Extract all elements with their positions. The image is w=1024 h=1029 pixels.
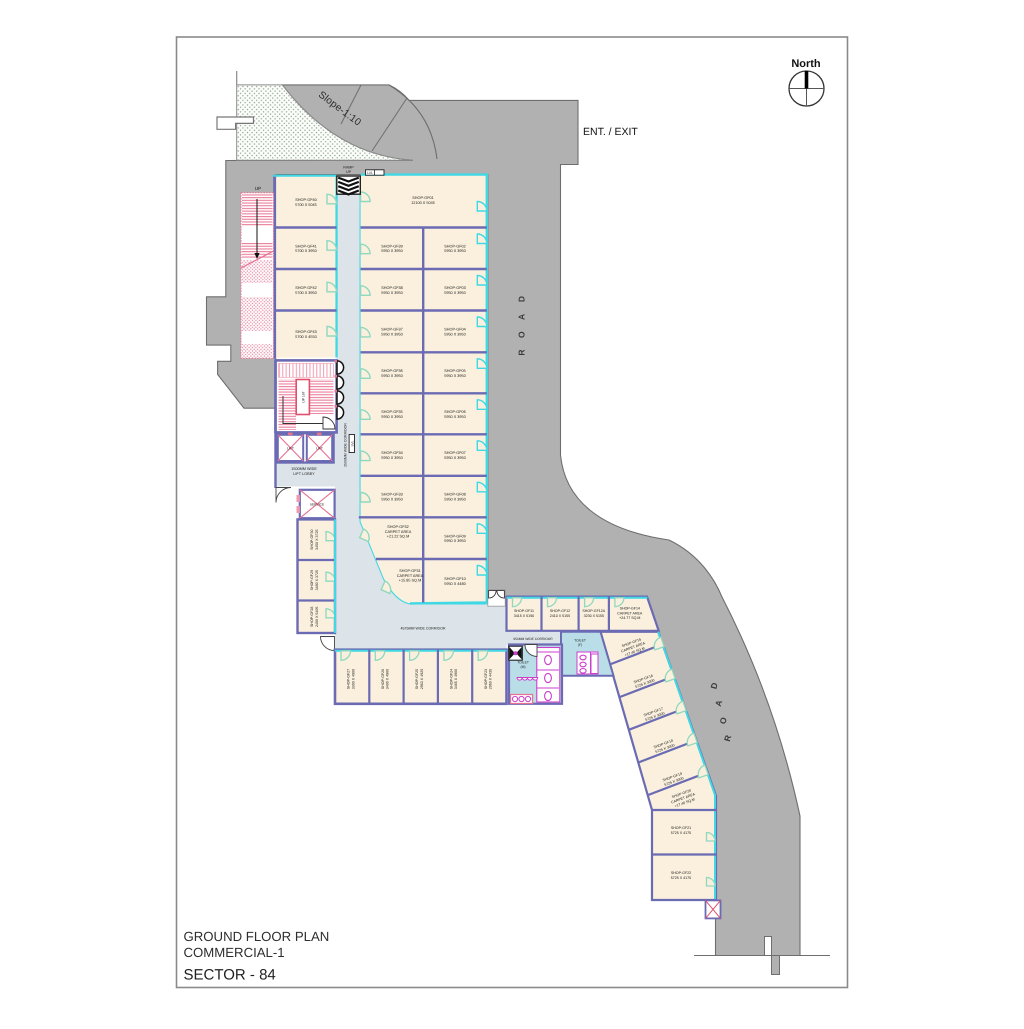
svg-text:3415 X 5190: 3415 X 5190: [514, 614, 534, 618]
svg-text:SHOP-GF41: SHOP-GF41: [295, 244, 317, 248]
svg-text:North: North: [791, 58, 821, 70]
svg-text:SHOP-GF32: SHOP-GF32: [387, 525, 409, 529]
svg-text:SHOP-GF26: SHOP-GF26: [381, 669, 385, 689]
svg-text:3400 X 4900: 3400 X 4900: [386, 669, 390, 689]
svg-text:LVL: LVL: [367, 171, 373, 175]
svg-text:5700 X 4550: 5700 X 4550: [295, 335, 317, 339]
svg-text:5950 X 3950: 5950 X 3950: [381, 374, 403, 378]
svg-text:R: R: [517, 349, 527, 355]
svg-text:5950 X 3950: 5950 X 3950: [444, 374, 466, 378]
svg-text:SHOP-GF31: SHOP-GF31: [399, 569, 421, 573]
svg-text:SHOP-GF42: SHOP-GF42: [295, 286, 317, 290]
svg-text:1500MM WIDE: 1500MM WIDE: [291, 467, 317, 471]
svg-text:UP 16T: UP 16T: [302, 391, 306, 402]
svg-text:3480 X 3725: 3480 X 3725: [315, 570, 319, 590]
svg-text:SECTOR - 84: SECTOR - 84: [184, 967, 276, 984]
svg-text:3450 X 3725: 3450 X 3725: [315, 530, 319, 550]
svg-text:(M): (M): [520, 665, 525, 669]
svg-text:2410 X 5155: 2410 X 5155: [550, 614, 570, 618]
svg-text:SHOP-GF09: SHOP-GF09: [444, 534, 466, 538]
svg-text:RAMP: RAMP: [343, 165, 354, 169]
svg-text:5950 X 3950: 5950 X 3950: [444, 332, 466, 336]
svg-text:5950 X 3950: 5950 X 3950: [444, 249, 466, 253]
svg-text:5950 X 3950: 5950 X 3950: [381, 498, 403, 502]
svg-text:5950 X 3950: 5950 X 3950: [381, 249, 403, 253]
svg-text:2500MM WIDE CORRIDOR: 2500MM WIDE CORRIDOR: [343, 423, 347, 467]
svg-text:SHOP-GF03: SHOP-GF03: [444, 286, 466, 290]
svg-text:2400 X 5405: 2400 X 5405: [315, 607, 319, 627]
svg-text:SHOP-GF12A: SHOP-GF12A: [582, 609, 605, 613]
svg-text:SHOP-GF30: SHOP-GF30: [310, 530, 314, 550]
svg-text:SHOP-GF35: SHOP-GF35: [381, 410, 403, 414]
svg-text:SHOP-GF23: SHOP-GF23: [484, 669, 488, 689]
svg-text:5950 X 3950: 5950 X 3950: [444, 498, 466, 502]
svg-text:LIFT: LIFT: [316, 447, 323, 451]
svg-text:SHOP-GF21: SHOP-GF21: [671, 826, 691, 830]
svg-text:A: A: [517, 314, 527, 320]
svg-text:+24.77 SQ.M: +24.77 SQ.M: [619, 616, 640, 620]
svg-text:TOILET: TOILET: [574, 639, 586, 643]
svg-text:UP: UP: [255, 186, 261, 191]
svg-text:5950 X 3950: 5950 X 3950: [381, 415, 403, 419]
svg-text:TOILET: TOILET: [517, 661, 529, 665]
svg-text:5950 X 3950: 5950 X 3950: [381, 332, 403, 336]
svg-text:5700 X 3950: 5700 X 3950: [295, 249, 317, 253]
svg-text:SHOP-GF06: SHOP-GF06: [444, 410, 466, 414]
svg-text:SHOP-GF01: SHOP-GF01: [412, 196, 434, 200]
svg-text:ENT. / EXIT: ENT. / EXIT: [583, 126, 638, 138]
svg-text:O: O: [517, 331, 527, 338]
svg-text:3230 X 5155: 3230 X 5155: [584, 614, 604, 618]
svg-text:5950 X 3950: 5950 X 3950: [444, 456, 466, 460]
svg-text:5950 X 4480: 5950 X 4480: [444, 582, 466, 586]
svg-text:SHOP-GF04: SHOP-GF04: [444, 328, 466, 332]
svg-text:+15.85 SQ.M: +15.85 SQ.M: [399, 579, 421, 583]
svg-text:SHOP-GF07: SHOP-GF07: [444, 451, 466, 455]
svg-text:SHOP-GF36: SHOP-GF36: [381, 369, 403, 373]
svg-text:UP: UP: [346, 170, 352, 174]
svg-text:SHOP-GF37: SHOP-GF37: [381, 328, 403, 332]
svg-text:5725 X 4175: 5725 X 4175: [671, 876, 691, 880]
svg-text:5950 X 3950: 5950 X 3950: [444, 291, 466, 295]
svg-text:5950 X 3950: 5950 X 3950: [444, 415, 466, 419]
svg-text:5950 X 3950: 5950 X 3950: [444, 539, 466, 543]
svg-text:5700 X 5045: 5700 X 5045: [295, 203, 317, 207]
svg-text:5700 X 3950: 5700 X 3950: [295, 291, 317, 295]
svg-text:SHOP-GF11: SHOP-GF11: [514, 609, 534, 613]
svg-text:CARPET AREA: CARPET AREA: [397, 574, 424, 578]
svg-text:3465 X 4900: 3465 X 4900: [454, 669, 458, 689]
svg-text:SHOP-GF22: SHOP-GF22: [671, 871, 691, 875]
svg-text:5950 X 3950: 5950 X 3950: [381, 456, 403, 460]
svg-text:4575MM WIDE CORRIDOR: 4575MM WIDE CORRIDOR: [401, 627, 446, 631]
svg-text:COMMERCIAL-1: COMMERCIAL-1: [184, 945, 285, 960]
svg-text:SHOP-GF43: SHOP-GF43: [295, 330, 317, 334]
svg-text:SHOP-GF38: SHOP-GF38: [381, 286, 403, 290]
svg-text:SHOP-GF05: SHOP-GF05: [444, 369, 466, 373]
svg-text:3300 X 4900: 3300 X 4900: [351, 669, 355, 689]
svg-text:SHOP-GF28: SHOP-GF28: [310, 607, 314, 627]
svg-text:SHOP-GF40: SHOP-GF40: [295, 198, 317, 202]
svg-text:LIFT: LIFT: [287, 447, 294, 451]
svg-text:SHOP-GF12: SHOP-GF12: [550, 609, 570, 613]
svg-text:12100 X 5045: 12100 X 5045: [411, 201, 435, 205]
svg-text:5725 X 4175: 5725 X 4175: [671, 831, 691, 835]
svg-text:LVL: LVL: [350, 441, 354, 447]
svg-text:2963 X 4925: 2963 X 4925: [420, 669, 424, 689]
svg-text:SHOP-GF29: SHOP-GF29: [310, 570, 314, 590]
svg-text:D: D: [517, 296, 527, 302]
svg-text:(F): (F): [578, 643, 582, 647]
svg-text:CARPET AREA: CARPET AREA: [385, 530, 412, 534]
svg-text:SHOP-GF24: SHOP-GF24: [450, 669, 454, 689]
svg-text:CARPET AREA: CARPET AREA: [617, 611, 643, 615]
svg-text:SHOP-GF33: SHOP-GF33: [381, 493, 403, 497]
svg-text:SHOP-GF27: SHOP-GF27: [347, 669, 351, 689]
svg-text:SHOP-GF34: SHOP-GF34: [381, 451, 403, 455]
svg-text:2950 X 4435: 2950 X 4435: [489, 669, 493, 689]
svg-text:GROUND FLOOR PLAN: GROUND FLOOR PLAN: [184, 929, 330, 944]
svg-text:SHOP-GF02: SHOP-GF02: [444, 244, 466, 248]
svg-text:+21.22 SQ.M: +21.22 SQ.M: [387, 535, 409, 539]
svg-text:LIFT LOBBY: LIFT LOBBY: [293, 472, 315, 476]
svg-text:SERVICE: SERVICE: [310, 503, 325, 507]
svg-text:SHOP-GF25: SHOP-GF25: [415, 669, 419, 689]
svg-text:SHOP-GF08: SHOP-GF08: [444, 493, 466, 497]
svg-text:5950 X 3950: 5950 X 3950: [381, 291, 403, 295]
svg-text:SHOP-GF39: SHOP-GF39: [381, 244, 403, 248]
svg-text:950MM WIDE CORRIDOR: 950MM WIDE CORRIDOR: [513, 637, 553, 641]
svg-text:SHOP-GF14: SHOP-GF14: [620, 607, 640, 611]
svg-text:SHOP-GF10: SHOP-GF10: [444, 577, 466, 581]
